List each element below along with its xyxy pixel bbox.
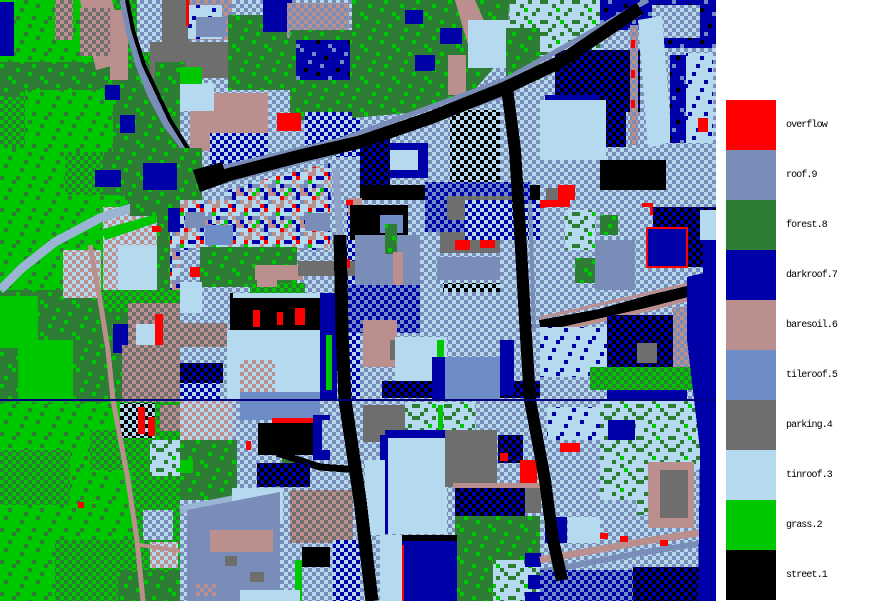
svg-text:baresoil.6: baresoil.6: [786, 319, 838, 331]
svg-text:street.1: street.1: [786, 570, 828, 581]
svg-text:roof.9: roof.9: [786, 169, 818, 181]
svg-text:tileroof.5: tileroof.5: [786, 369, 838, 381]
svg-text:parking.4: parking.4: [786, 419, 833, 431]
svg-text:overflow: overflow: [786, 119, 828, 131]
svg-text:forest.8: forest.8: [786, 219, 828, 231]
svg-text:tinroof.3: tinroof.3: [786, 469, 833, 481]
svg-text:darkroof.7: darkroof.7: [786, 269, 838, 281]
svg-text:grass.2: grass.2: [786, 520, 823, 531]
